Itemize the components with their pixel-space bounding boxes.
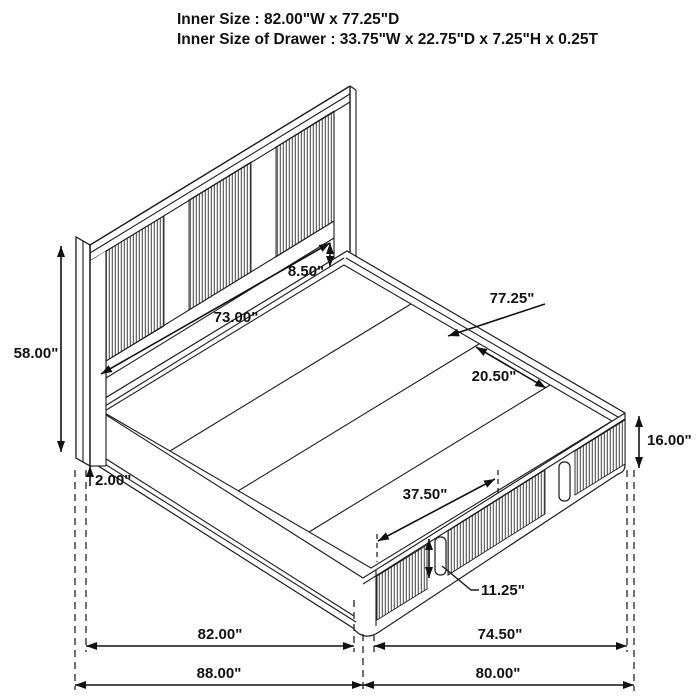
diagram-title: Inner Size : 82.00"W x 77.25"D Inner Siz…: [177, 10, 598, 50]
dim-label: 88.00": [197, 665, 242, 682]
bed-dimension-diagram: 58.00" 73.00" 8.50" 77.25" 20.50" 2.00": [0, 0, 700, 700]
dim-label: 77.25": [490, 290, 535, 307]
dim-label: 37.50": [403, 486, 448, 503]
dim-label: 73.00": [214, 309, 259, 326]
dim-side-outer-length: 88.00": [75, 665, 363, 685]
dim-headboard-height: 58.00": [14, 246, 61, 452]
dim-foot-outer-width: 80.00": [363, 665, 634, 685]
title-line-2: Inner Size of Drawer : 33.75"W x 22.75"D…: [177, 30, 598, 50]
dim-label: 20.50": [472, 368, 517, 385]
dim-label: 58.00": [14, 345, 59, 362]
drawer-handle-1: [435, 537, 446, 575]
dim-label: 74.50": [478, 626, 523, 643]
dim-footboard-height: 16.00": [639, 416, 692, 468]
dim-label: 16.00": [647, 432, 692, 449]
dim-label: 2.00": [95, 472, 131, 489]
dim-label: 8.50": [288, 263, 324, 280]
headboard-left-leg-front: [76, 237, 106, 466]
drawer-handle-2: [559, 462, 570, 501]
title-line-1: Inner Size : 82.00"W x 77.25"D: [177, 10, 598, 30]
dim-label: 11.25": [481, 582, 525, 599]
dim-label: 80.00": [476, 665, 521, 682]
dim-label: 82.00": [198, 626, 243, 643]
dim-side-inner-length: 82.00": [86, 626, 354, 646]
dim-foot-inner-width: 74.50": [374, 626, 627, 646]
diagram-canvas: 58.00" 73.00" 8.50" 77.25" 20.50" 2.00": [0, 0, 700, 700]
